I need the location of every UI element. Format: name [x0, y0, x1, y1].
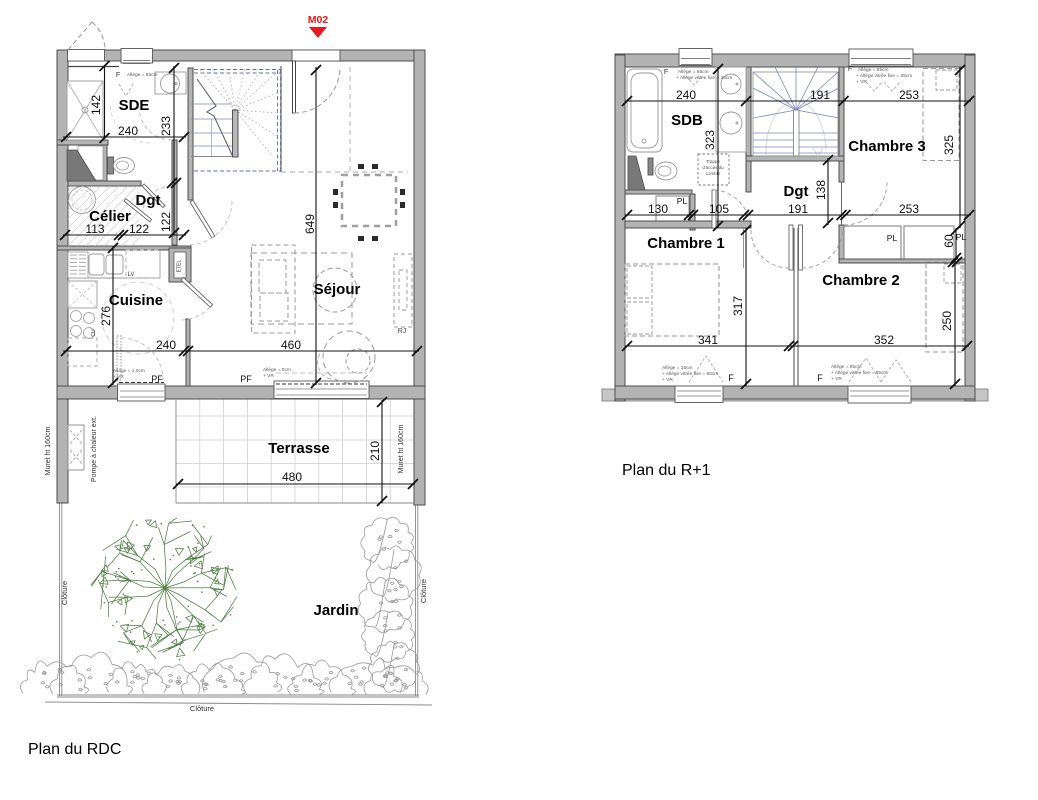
svg-text:+ Allège vitrée fixe = 85cm: + Allège vitrée fixe = 85cm — [662, 371, 718, 377]
svg-text:Muret ht 160cm: Muret ht 160cm — [45, 427, 52, 476]
svg-text:Clôture: Clôture — [190, 704, 214, 713]
svg-text:F: F — [116, 72, 120, 79]
svg-text:Chambre 3: Chambre 3 — [848, 138, 926, 155]
svg-text:d'accès du: d'accès du — [702, 165, 724, 170]
svg-text:F: F — [728, 373, 734, 383]
svg-text:Plan du RDC: Plan du RDC — [28, 741, 121, 758]
svg-text:Allège = 1,0cm: Allège = 1,0cm — [113, 368, 145, 374]
svg-text:CU: CU — [91, 329, 97, 337]
svg-text:PF: PF — [151, 374, 163, 384]
svg-text:Allège = 65cm: Allège = 65cm — [678, 69, 709, 75]
svg-text:122: 122 — [159, 212, 173, 232]
svg-text:233: 233 — [159, 116, 173, 136]
svg-text:+ Allège vitrée fixe = 36cm: + Allège vitrée fixe = 36cm — [676, 75, 732, 81]
svg-text:191: 191 — [810, 88, 830, 102]
svg-text:M02: M02 — [308, 14, 329, 26]
svg-text:SDE: SDE — [119, 97, 150, 114]
svg-text:Plan du R+1: Plan du R+1 — [622, 462, 711, 479]
svg-text:Allège = 15cm: Allège = 15cm — [662, 365, 693, 371]
svg-text:480: 480 — [282, 470, 302, 484]
svg-text:ETEL: ETEL — [177, 260, 183, 273]
svg-text:325: 325 — [942, 135, 956, 155]
svg-text:Cuisine: Cuisine — [109, 292, 163, 309]
svg-text:60: 60 — [942, 234, 956, 248]
svg-text:+ VR: + VR — [856, 79, 867, 85]
svg-text:PF: PF — [240, 374, 252, 384]
svg-text:PL: PL — [887, 233, 898, 243]
svg-text:+ VR: + VR — [113, 374, 124, 380]
svg-text:RJ: RJ — [398, 328, 407, 335]
svg-text:PL: PL — [956, 232, 967, 242]
svg-text:Terrasse: Terrasse — [268, 440, 329, 457]
svg-text:Dgt: Dgt — [136, 192, 161, 209]
svg-text:+ Allège vitrée fixe = 85cm: + Allège vitrée fixe = 85cm — [831, 370, 887, 376]
svg-text:240: 240 — [118, 124, 138, 138]
svg-text:Allège = 85cm: Allège = 85cm — [858, 67, 889, 73]
svg-text:105: 105 — [709, 202, 729, 216]
svg-text:122: 122 — [129, 222, 149, 236]
svg-text:+ Allège vitrée fixe = 35cm: + Allège vitrée fixe = 35cm — [856, 73, 912, 79]
svg-text:SDB: SDB — [671, 112, 703, 129]
svg-text:PL: PL — [677, 196, 688, 206]
svg-text:253: 253 — [899, 202, 919, 216]
svg-text:Allège = 65cm: Allège = 65cm — [127, 72, 158, 78]
svg-text:Célier: Célier — [89, 208, 131, 225]
svg-text:649: 649 — [303, 214, 317, 234]
svg-text:138: 138 — [814, 180, 828, 200]
svg-text:Allège = 85cm: Allège = 85cm — [831, 364, 862, 370]
svg-text:F: F — [817, 373, 823, 383]
svg-text:Jardin: Jardin — [313, 602, 358, 619]
svg-text:Chambre 1: Chambre 1 — [647, 235, 725, 252]
svg-text:250: 250 — [940, 311, 954, 331]
svg-text:Muret ht 160cm: Muret ht 160cm — [398, 425, 405, 474]
svg-text:210: 210 — [368, 441, 382, 461]
svg-text:Allège = 0cm: Allège = 0cm — [263, 367, 291, 373]
svg-text:Dgt: Dgt — [784, 183, 809, 200]
svg-text:460: 460 — [281, 338, 301, 352]
svg-text:Séjour: Séjour — [314, 281, 361, 298]
svg-text:142: 142 — [89, 95, 103, 115]
svg-text:Pompe à chaleur ext.: Pompe à chaleur ext. — [91, 416, 98, 482]
svg-text:Chambre 2: Chambre 2 — [822, 272, 900, 289]
svg-text:341: 341 — [698, 333, 718, 347]
svg-text:253: 253 — [899, 88, 919, 102]
svg-text:191: 191 — [788, 202, 808, 216]
svg-text:+ VR: + VR — [263, 373, 274, 379]
svg-text:LV: LV — [128, 272, 135, 278]
svg-text:352: 352 — [874, 333, 894, 347]
svg-text:+ VR: + VR — [831, 376, 842, 382]
svg-text:323: 323 — [703, 130, 717, 150]
svg-text:317: 317 — [731, 296, 745, 316]
svg-text:Clôture: Clôture — [60, 581, 69, 605]
svg-text:240: 240 — [156, 338, 176, 352]
svg-text:130: 130 — [648, 202, 668, 216]
svg-text:240: 240 — [676, 88, 696, 102]
svg-text:F: F — [848, 66, 852, 73]
svg-text:+ VR: + VR — [662, 377, 673, 383]
svg-text:F: F — [664, 69, 668, 76]
